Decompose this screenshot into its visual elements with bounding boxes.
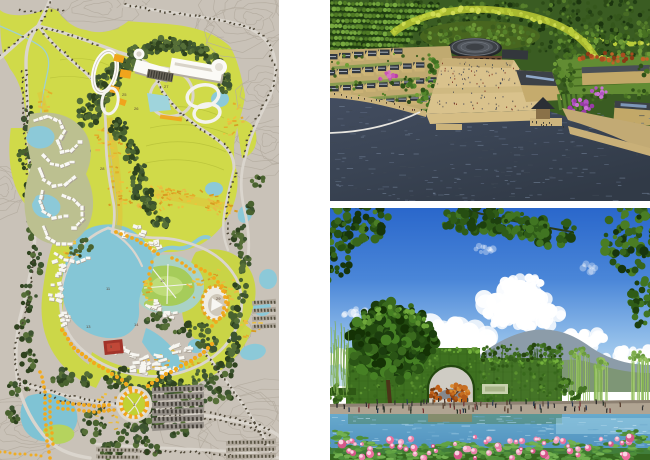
svg-text:13: 13 [86, 324, 91, 329]
svg-text:25: 25 [122, 92, 127, 97]
svg-text:28: 28 [100, 166, 105, 171]
svg-text:14: 14 [134, 322, 139, 327]
svg-text:26: 26 [134, 106, 139, 111]
svg-text:10: 10 [160, 278, 165, 283]
svg-text:29: 29 [216, 296, 221, 301]
svg-text:27: 27 [164, 84, 169, 89]
